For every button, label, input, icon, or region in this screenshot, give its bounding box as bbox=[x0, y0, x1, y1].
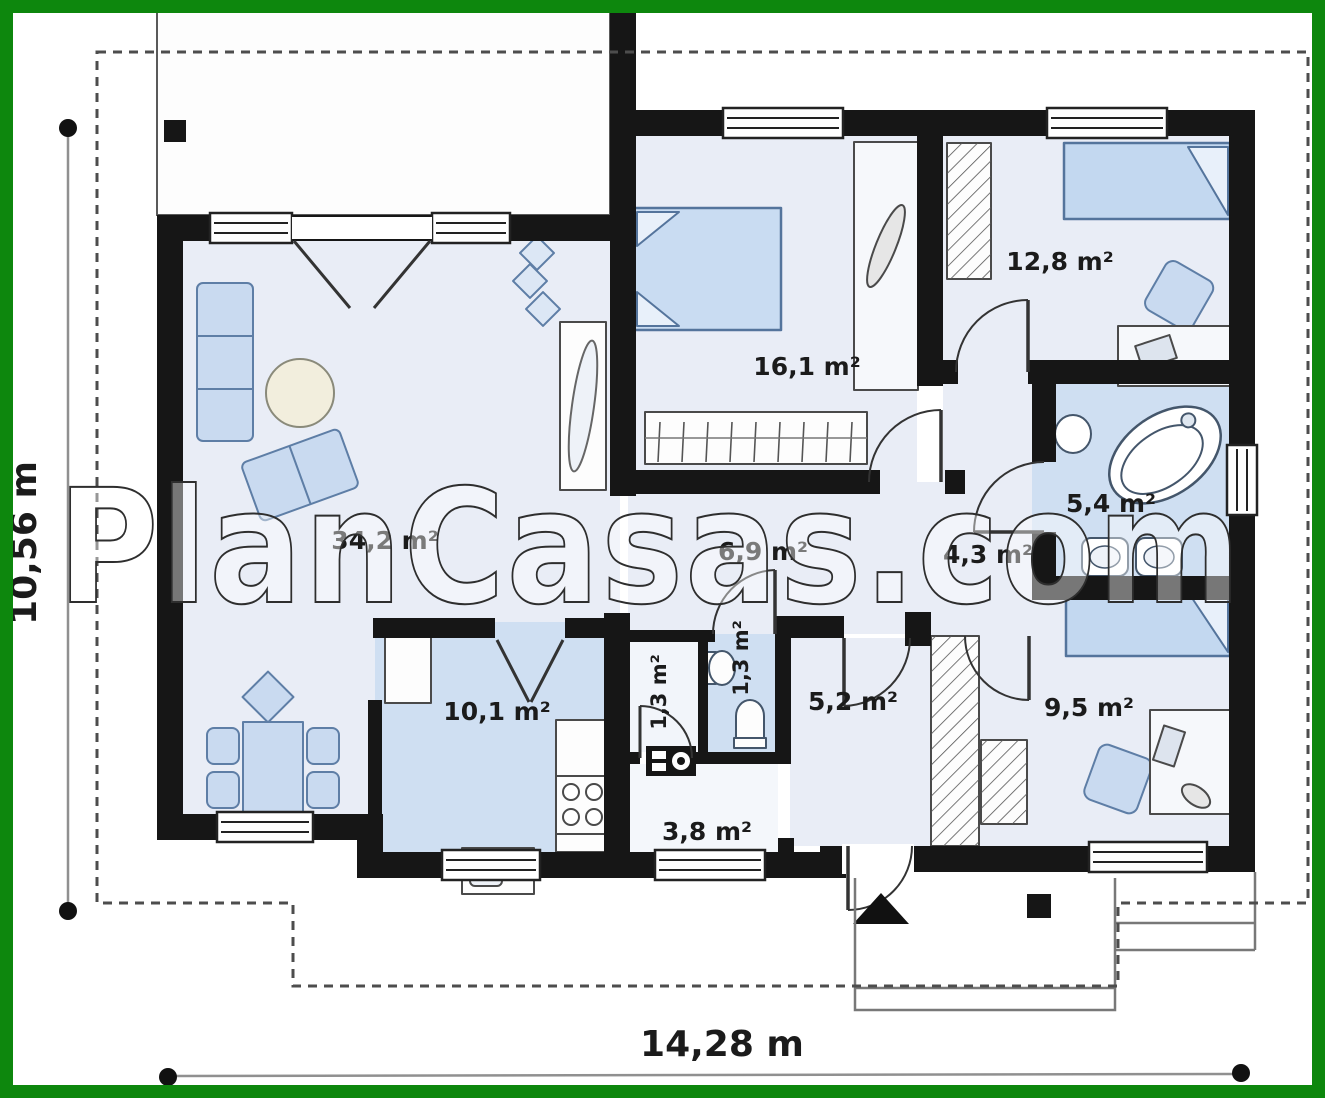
desk bbox=[854, 142, 918, 390]
porch-outline bbox=[855, 872, 1255, 1010]
wall-bedrooms-divider bbox=[917, 136, 943, 386]
sofa-three-seat bbox=[197, 283, 253, 441]
dimension-width: 14,28 m bbox=[159, 1024, 1250, 1086]
bedroom-right-label: 12,8 m² bbox=[1006, 247, 1113, 276]
computer-desk bbox=[1150, 710, 1230, 814]
bed-single bbox=[1064, 143, 1230, 219]
window bbox=[655, 850, 765, 880]
dimension-dot bbox=[59, 902, 77, 920]
porch-post bbox=[1027, 894, 1051, 918]
terrace-post bbox=[164, 120, 186, 142]
wall-wc-bottom-b bbox=[690, 752, 790, 764]
floor-plan-page: 10,56 m 14,28 m 34,2 m² 10,1 m² 16,1 m² … bbox=[0, 0, 1325, 1098]
window bbox=[210, 213, 292, 243]
window bbox=[217, 812, 313, 842]
wall-bath-left-a bbox=[1032, 384, 1056, 462]
wall-vestibule-stub bbox=[778, 838, 794, 854]
window bbox=[1047, 108, 1167, 138]
terrace bbox=[157, 12, 610, 215]
dimension-dot bbox=[59, 119, 77, 137]
width-dimension-label: 14,28 m bbox=[640, 1024, 804, 1065]
hallway-floor bbox=[790, 638, 931, 846]
stove bbox=[556, 776, 608, 834]
wc-a-label: 1,3 m² bbox=[647, 654, 671, 730]
dimension-dot bbox=[1232, 1064, 1250, 1082]
kitchen-label: 10,1 m² bbox=[443, 697, 550, 726]
chair bbox=[207, 772, 239, 808]
watermark-text: PlanCasas.com bbox=[58, 456, 1243, 640]
closet-hatched bbox=[981, 740, 1027, 824]
bed-double bbox=[633, 208, 781, 330]
closet-hatched bbox=[931, 636, 979, 846]
wc-toilet bbox=[734, 700, 766, 748]
entrance-opening bbox=[842, 844, 914, 874]
window bbox=[442, 850, 540, 880]
boiler-unit bbox=[646, 746, 696, 776]
bedroom-top-label: 16,1 m² bbox=[753, 352, 860, 381]
vestibule-label: 3,8 m² bbox=[662, 817, 752, 846]
window bbox=[723, 108, 843, 138]
floor-plan-drawing: 10,56 m 14,28 m 34,2 m² 10,1 m² 16,1 m² … bbox=[0, 0, 1325, 1098]
chair bbox=[207, 728, 239, 764]
window bbox=[1089, 842, 1207, 872]
chair bbox=[307, 772, 339, 808]
bedroom-bottom-label: 9,5 m² bbox=[1044, 693, 1134, 722]
chair bbox=[307, 728, 339, 764]
wardrobe-hatched bbox=[947, 143, 991, 279]
window bbox=[432, 213, 510, 243]
dining-table bbox=[243, 722, 303, 814]
hallway-label: 5,2 m² bbox=[808, 687, 898, 716]
wall-living-divider bbox=[610, 110, 636, 496]
wall-kitchen-left bbox=[368, 700, 382, 852]
terrace-door-opening bbox=[292, 217, 432, 239]
dimension-dot bbox=[159, 1068, 177, 1086]
wall-kitchen-wc bbox=[604, 613, 630, 852]
coffee-table bbox=[266, 359, 334, 427]
wall-bedroom-right-bottom-b bbox=[1028, 360, 1242, 384]
wall-wc-divider bbox=[698, 634, 708, 758]
fridge bbox=[385, 637, 431, 703]
